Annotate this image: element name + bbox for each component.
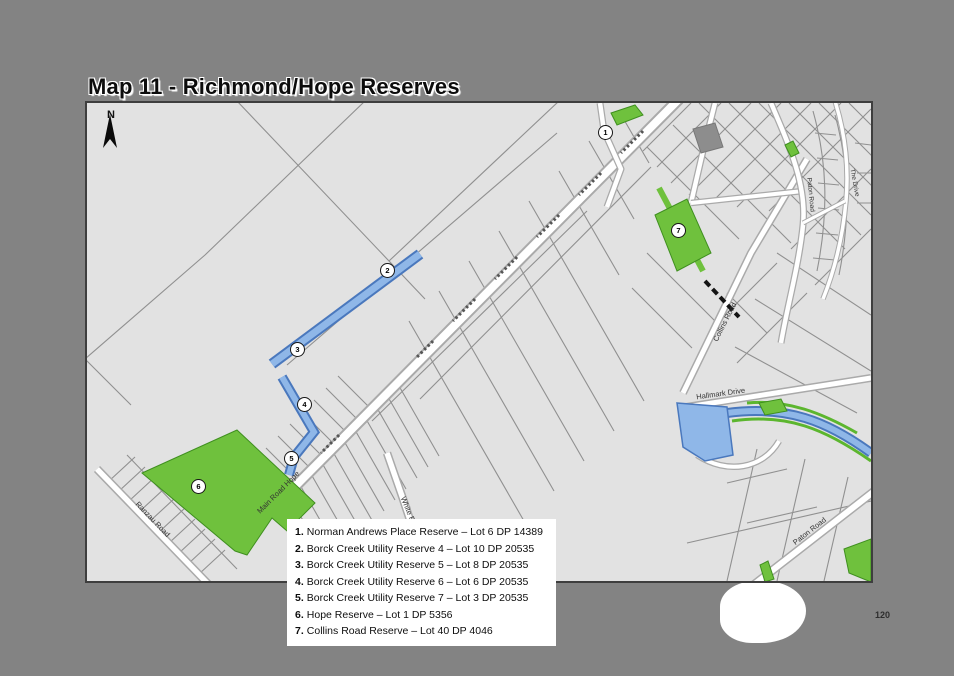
legend-item-text: Hope Reserve – Lot 1 DP 5356 (307, 609, 453, 621)
marker-2: 2 (380, 263, 395, 278)
map-frame: Main Road Hope White Road Ranzau Road Co… (85, 101, 873, 583)
legend-item-number: 4. (295, 576, 304, 588)
north-arrow-icon (100, 110, 120, 150)
legend-item: 2.Borck Creek Utility Reserve 4 – Lot 10… (295, 541, 551, 558)
page-number: 120 (875, 610, 890, 620)
map-canvas: Main Road Hope White Road Ranzau Road Co… (87, 103, 871, 581)
legend-item: 3.Borck Creek Utility Reserve 5 – Lot 8 … (295, 557, 551, 574)
marker-4: 4 (297, 397, 312, 412)
legend-item-text: Borck Creek Utility Reserve 5 – Lot 8 DP… (307, 559, 529, 571)
legend-item-number: 6. (295, 609, 304, 621)
legend-item-text: Borck Creek Utility Reserve 7 – Lot 3 DP… (307, 592, 529, 604)
page-title: Map 11 - Richmond/Hope Reserves (88, 74, 460, 100)
legend-item-text: Collins Road Reserve – Lot 40 DP 4046 (307, 625, 493, 637)
legend-item-text: Norman Andrews Place Reserve – Lot 6 DP … (307, 526, 543, 538)
legend-item-text: Borck Creek Utility Reserve 6 – Lot 6 DP… (307, 576, 529, 588)
marker-5: 5 (284, 451, 299, 466)
north-arrow: N (100, 110, 122, 121)
page: Map 11 - Richmond/Hope Reserves (0, 0, 954, 676)
map-spill-shape (720, 581, 806, 643)
marker-1: 1 (598, 125, 613, 140)
legend-item: 7.Collins Road Reserve – Lot 40 DP 4046 (295, 623, 551, 640)
legend: 1.Norman Andrews Place Reserve – Lot 6 D… (287, 519, 556, 646)
legend-item-number: 2. (295, 543, 304, 555)
legend-item-number: 3. (295, 559, 304, 571)
marker-3: 3 (290, 342, 305, 357)
legend-item-number: 1. (295, 526, 304, 538)
marker-6: 6 (191, 479, 206, 494)
marker-7: 7 (671, 223, 686, 238)
legend-item: 1.Norman Andrews Place Reserve – Lot 6 D… (295, 524, 551, 541)
legend-item-text: Borck Creek Utility Reserve 4 – Lot 10 D… (307, 543, 534, 555)
legend-item-number: 7. (295, 625, 304, 637)
legend-item: 5.Borck Creek Utility Reserve 7 – Lot 3 … (295, 590, 551, 607)
legend-item-number: 5. (295, 592, 304, 604)
legend-item: 4.Borck Creek Utility Reserve 6 – Lot 6 … (295, 574, 551, 591)
legend-item: 6.Hope Reserve – Lot 1 DP 5356 (295, 607, 551, 624)
